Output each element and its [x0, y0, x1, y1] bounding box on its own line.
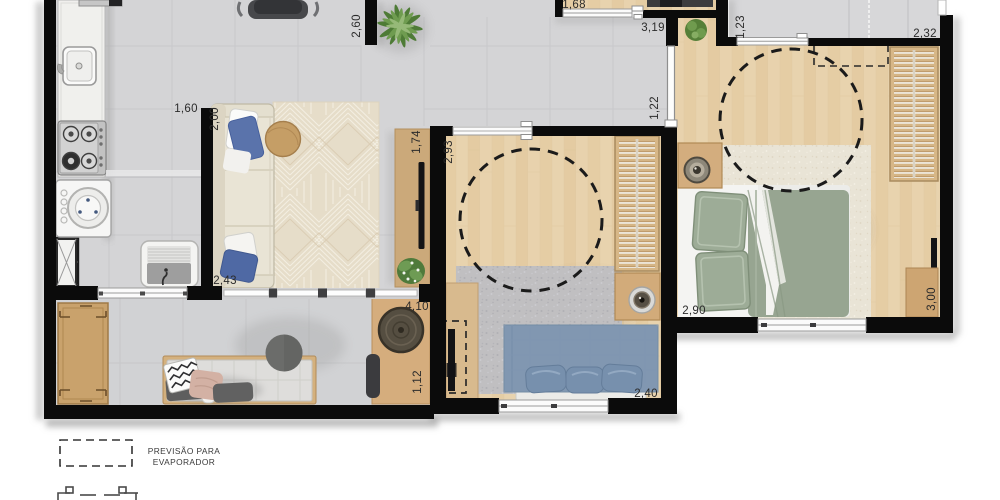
svg-text:1,60: 1,60 [174, 103, 198, 115]
svg-text:1,12: 1,12 [412, 370, 424, 394]
svg-text:3,00: 3,00 [926, 287, 938, 311]
svg-text:EVAPORADOR: EVAPORADOR [153, 457, 215, 467]
svg-text:2,60: 2,60 [351, 14, 363, 38]
svg-text:3,19: 3,19 [641, 22, 665, 34]
svg-text:4,10: 4,10 [405, 301, 429, 313]
svg-text:2,43: 2,43 [213, 275, 237, 287]
svg-text:2,90: 2,90 [682, 305, 706, 317]
svg-text:2,93: 2,93 [443, 140, 455, 164]
svg-text:1,68: 1,68 [562, 0, 586, 11]
svg-text:1,74: 1,74 [411, 130, 423, 154]
svg-text:1,23: 1,23 [735, 15, 747, 39]
svg-text:PREVISÃO PARA: PREVISÃO PARA [148, 446, 221, 456]
svg-text:2,40: 2,40 [634, 388, 658, 400]
svg-text:2,00: 2,00 [209, 107, 221, 131]
svg-text:2,32: 2,32 [913, 28, 937, 40]
svg-text:1,22: 1,22 [649, 96, 661, 120]
